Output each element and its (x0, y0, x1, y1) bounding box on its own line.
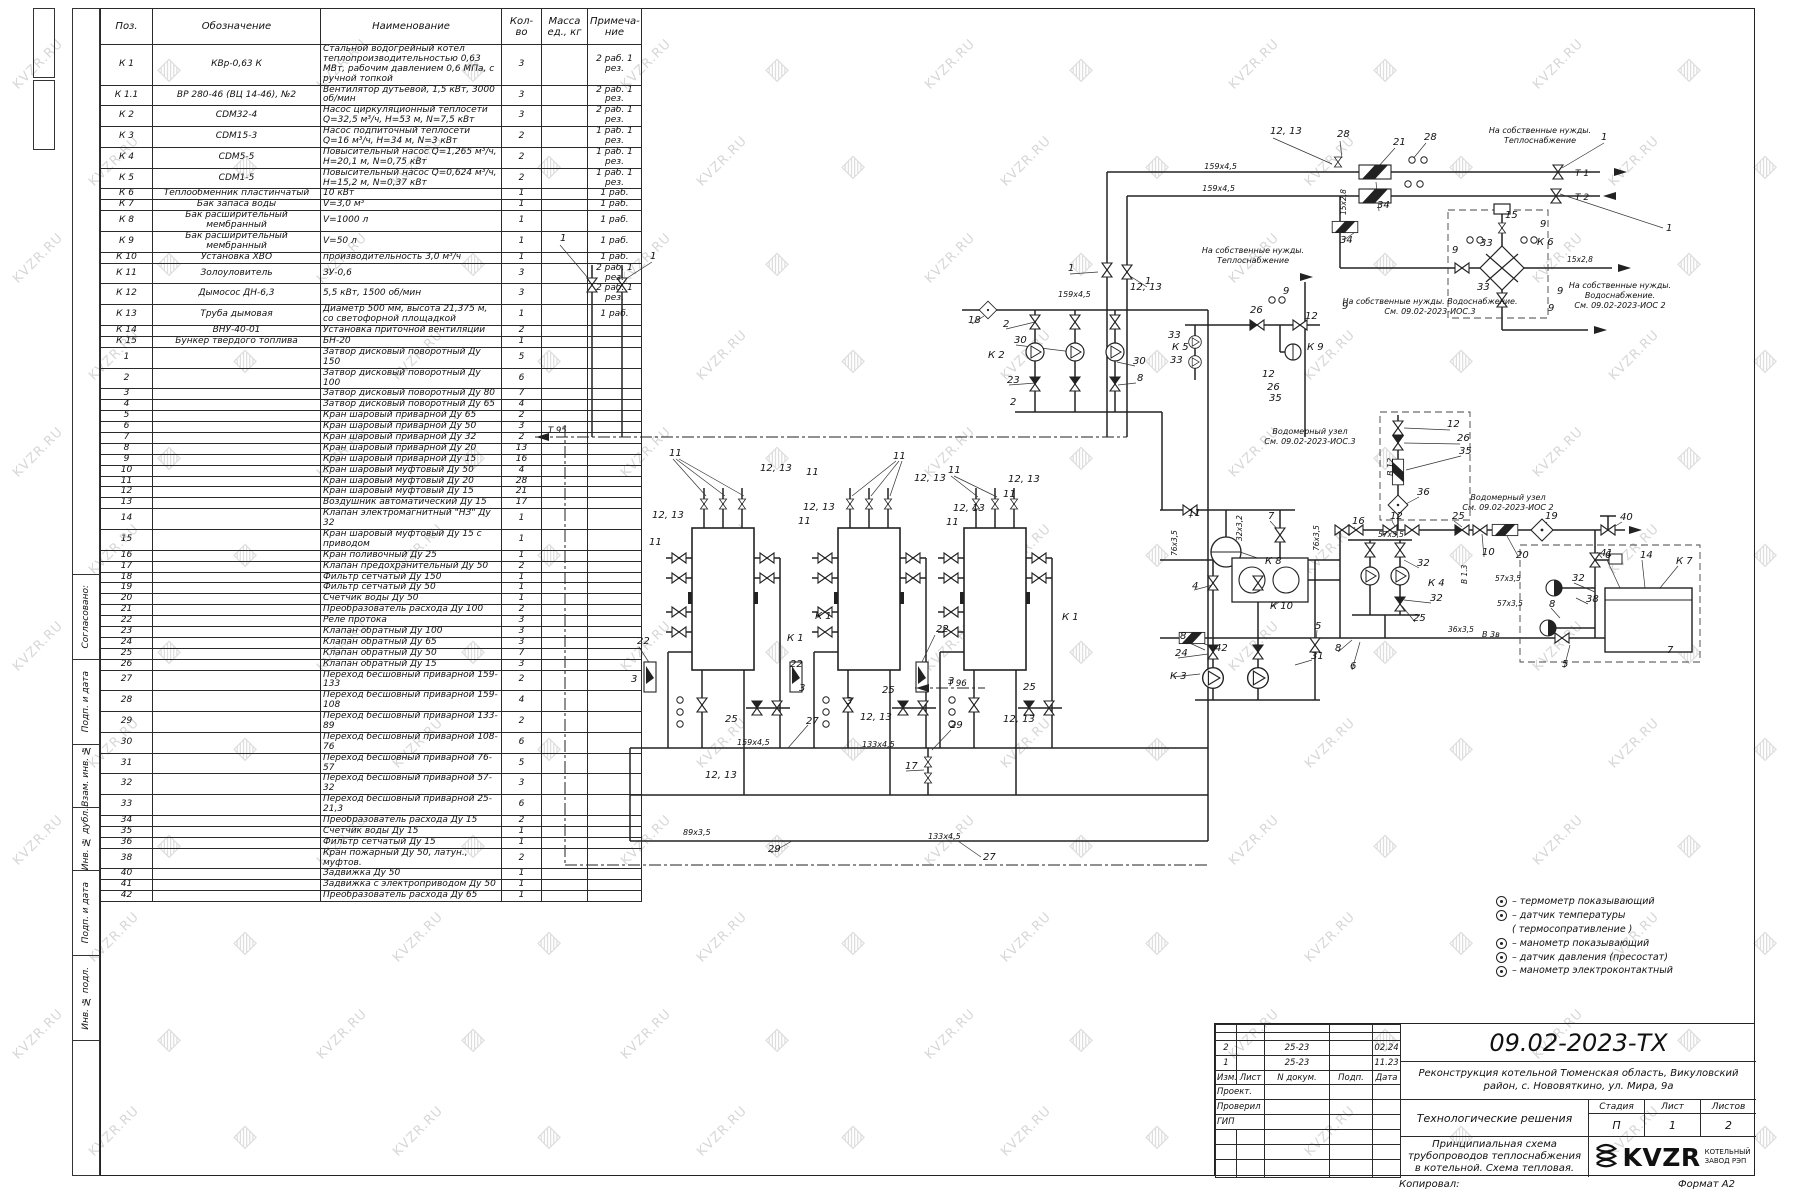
spec-cell: 1 раб. 1 рез. (588, 127, 642, 148)
spec-row: К 11ЗолоуловительЗУ-0,632 раб. 1 рез. (101, 263, 642, 284)
symbol-vh (1110, 315, 1120, 329)
spec-cell (153, 476, 321, 487)
schematic-label: 25 (882, 685, 895, 696)
revision-cell: Изм. (1216, 1071, 1237, 1085)
symbol-rl (644, 662, 656, 692)
spec-cell: 1 раб. (588, 305, 642, 326)
spec-row: 17Клапан предохранительный Ду 502 (101, 561, 642, 572)
revision-cell: Проверил (1216, 1100, 1265, 1115)
spec-row: 29Переход бесшовный приварной 133-892 (101, 712, 642, 733)
revision-cell (1330, 1056, 1373, 1071)
spec-cell: 2 (101, 368, 153, 389)
schematic-label: 2 (1010, 397, 1016, 408)
spec-cell: 16 (101, 550, 153, 561)
revision-cell (1237, 1130, 1265, 1145)
schematic-label: 9 (1283, 286, 1289, 297)
schematic-label: 28 (1424, 132, 1437, 143)
spec-cell: 8 (101, 443, 153, 454)
spec-cell: 9 (101, 454, 153, 465)
spec-cell: Переход бесшовный приварной 133-89 (321, 712, 502, 733)
spec-cell: 21 (502, 487, 542, 498)
symbol-vh (1275, 528, 1285, 542)
expansion-tank-k9 (1285, 344, 1301, 360)
legend-label: ( термосопративление ) (1512, 924, 1632, 935)
symbol-pm (1248, 668, 1269, 689)
revision-cell (1237, 1145, 1265, 1160)
legend-item: – манометр электроконтактный (1496, 965, 1673, 976)
schematic-label: 21 (1393, 137, 1406, 148)
schematic-label: 15 (1505, 210, 1518, 221)
symbol-ch (1455, 525, 1469, 535)
spec-cell: Бак расширительный мембранный (153, 232, 321, 253)
schematic-label: 25 (725, 714, 738, 725)
spec-cell: Стальной водогрейный котел теплопроизвод… (321, 45, 502, 86)
flow-arrow-icon (1629, 526, 1642, 534)
symbol-vh (944, 607, 958, 617)
spec-cell: 3 (502, 45, 542, 86)
schematic-label: 11 (1188, 508, 1201, 519)
spec-cell: Клапан предохранительный Ду 50 (321, 561, 502, 572)
spec-cell: 1 (502, 594, 542, 605)
instrument-icon (1496, 910, 1507, 921)
spec-cell: 1 (502, 869, 542, 880)
schematic-label: 26 (1250, 305, 1263, 316)
spec-cell (588, 869, 642, 880)
schematic-label: К 9 (1307, 342, 1324, 353)
spec-cell (588, 432, 642, 443)
schematic-label: На собственные нужды. (1489, 126, 1591, 135)
spec-cell (542, 648, 588, 659)
spec-cell: 14 (101, 509, 153, 530)
spec-cell (588, 336, 642, 347)
spec-cell (542, 509, 588, 530)
spec-cell: 2 (502, 848, 542, 869)
spec-cell (542, 368, 588, 389)
spec-cell: Задвижка с электроприводом Ду 50 (321, 880, 502, 891)
spec-cell: 26 (101, 659, 153, 670)
spec-cell: V=50 л (321, 232, 502, 253)
spec-cell: Золоуловитель (153, 263, 321, 284)
spec-cell (542, 487, 588, 498)
spec-cell: 34 (101, 816, 153, 827)
spec-cell (542, 869, 588, 880)
symbol-vh (1393, 421, 1403, 435)
schematic-label: 17 (905, 761, 918, 772)
schematic-label: На собственные нужды. Водоснабжение. (1342, 297, 1517, 306)
spec-cell: 5 (502, 347, 542, 368)
spec-cell: Клапан обратный Ду 50 (321, 648, 502, 659)
spec-row: 13Воздушник автоматический Ду 1517 (101, 498, 642, 509)
spec-cell (542, 594, 588, 605)
spec-cell: 4 (502, 400, 542, 411)
symbol-vh (846, 499, 853, 509)
schematic-label: 30 (1014, 335, 1027, 346)
spec-cell: Бункер твердого топлива (153, 336, 321, 347)
spec-cell: 21 (101, 605, 153, 616)
spec-cell: 1 (502, 252, 542, 263)
schematic-label: 35 (1459, 446, 1472, 457)
spec-row: 9Кран шаровый приварной Ду 1516 (101, 454, 642, 465)
side-label: Взам. инв. № (81, 745, 91, 807)
symbol-mc (1269, 297, 1275, 303)
spec-cell: 1 (502, 826, 542, 837)
schematic-label: 38 (1586, 594, 1599, 605)
schematic-label: На собственные нужды. (1202, 246, 1304, 255)
spec-cell: 1 (502, 305, 542, 326)
schematic-label: К 2 (988, 350, 1005, 361)
legend-label: – манометр показывающий (1512, 938, 1649, 949)
spec-cell: 6 (502, 368, 542, 389)
schematic-label: 12, 13 (760, 463, 792, 474)
spec-cell: 22 (101, 616, 153, 627)
spec-cell (542, 605, 588, 616)
symbol-dm (979, 301, 997, 319)
symbol-vh (1365, 543, 1375, 557)
revision-row (1216, 1130, 1401, 1145)
schematic-label: 8 (1137, 373, 1143, 384)
spec-cell (542, 211, 588, 232)
spec-row: К 14ВНУ-40-01Установка приточной вентиля… (101, 326, 642, 337)
legend-item: ( термосопративление ) (1496, 924, 1673, 935)
spec-cell (588, 400, 642, 411)
schematic-label: 36 (1417, 487, 1430, 498)
spec-cell (588, 487, 642, 498)
symbol-vh (672, 627, 686, 637)
spec-cell (588, 712, 642, 733)
stage-label: Стадия (1588, 1100, 1644, 1114)
spec-cell (542, 529, 588, 550)
spec-cell: 28 (101, 691, 153, 712)
spec-row: 23Клапан обратный Ду 1003 (101, 626, 642, 637)
schematic-label: 11 (946, 517, 959, 528)
spec-cell (153, 637, 321, 648)
schematic-label: В 12 (1386, 458, 1395, 476)
schematic-label: 24 (1175, 648, 1188, 659)
flow-arrow-icon (1614, 168, 1627, 176)
spec-cell: Вентилятор дутьевой, 1,5 кВт, 3000 об/ми… (321, 85, 502, 106)
spec-cell (153, 432, 321, 443)
spec-cell (588, 422, 642, 433)
schematic-label: См. 09.02-2023-ИОС.3 (1384, 307, 1475, 316)
schematic-label: 33 (1168, 330, 1181, 341)
spec-cell: 11 (101, 476, 153, 487)
spec-row: 18Фильтр сетчатый Ду 1501 (101, 572, 642, 583)
schematic-label: 8 (1180, 631, 1186, 642)
spec-row: К 3CDM15-3Насос подпиточный теплосети Q=… (101, 127, 642, 148)
revision-cell (1373, 1160, 1401, 1178)
symbol-vh (865, 499, 872, 509)
spec-row: 6Кран шаровый приварной Ду 503 (101, 422, 642, 433)
spec-cell: Затвор дисковый поворотный Ду 150 (321, 347, 502, 368)
schematic-label: К 1 (1062, 612, 1079, 623)
revision-row: 125-2311.23 (1216, 1056, 1401, 1071)
spec-cell: Фильтр сетчатый Ду 50 (321, 583, 502, 594)
revision-cell (1330, 1100, 1373, 1115)
spec-cell: 7 (502, 389, 542, 400)
spec-cell (153, 616, 321, 627)
spec-cell (588, 529, 642, 550)
spec-cell: Кран пожарный Ду 50, латун., муфтов. (321, 848, 502, 869)
schematic-label: 2 (1003, 319, 1009, 330)
spec-cell (153, 400, 321, 411)
schematic-label: 26 (1267, 382, 1280, 393)
symbol-vh (906, 553, 920, 563)
schematic-label: 57х3,5 (1497, 599, 1523, 608)
revision-cell: 25-23 (1265, 1041, 1330, 1056)
spec-cell (153, 774, 321, 795)
spec-cell (153, 712, 321, 733)
spec-row: 38Кран пожарный Ду 50, латун., муфтов.2 (101, 848, 642, 869)
spec-cell: Фильтр сетчатый Ду 150 (321, 572, 502, 583)
spec-cell (542, 826, 588, 837)
spec-cell: 5,5 кВт, 1500 об/мин (321, 284, 502, 305)
spec-cell: Затвор дисковый поворотный Ду 65 (321, 400, 502, 411)
instrument-icon (1496, 952, 1507, 963)
spec-cell: К 6 (101, 189, 153, 200)
spec-cell (588, 454, 642, 465)
spec-row: К 10Установка ХВОпроизводительность 3,0 … (101, 252, 642, 263)
spec-cell (542, 561, 588, 572)
spec-row: К 9Бак расширительный мембранныйV=50 л11… (101, 232, 642, 253)
drawing-sheet: ▨KVZR.RU▨KVZR.RU▨KVZR.RU▨KVZR.RU▨KVZR.RU… (0, 0, 1800, 1200)
spec-cell: 29 (101, 712, 153, 733)
flow-arrow-icon (1594, 326, 1607, 334)
schematic-label: 22 (790, 659, 803, 670)
spec-cell (542, 284, 588, 305)
schematic-label: 7 (1268, 511, 1275, 522)
logo-caption: КОТЕЛЬНЫЙ ЗАВОД РЭП (1705, 1148, 1751, 1166)
spec-cell: 3 (502, 637, 542, 648)
spec-cell: 13 (502, 443, 542, 454)
spec-cell: Клапан электромагнитный "НЗ" Ду 32 (321, 509, 502, 530)
spec-row: 26Клапан обратный Ду 153 (101, 659, 642, 670)
symbol-mc (677, 697, 683, 703)
logo-text: KVZR (1622, 1143, 1700, 1172)
spec-row: 14Клапан электромагнитный "НЗ" Ду 321 (101, 509, 642, 530)
revision-row (1216, 1025, 1401, 1033)
symbol-vh (1208, 576, 1218, 590)
symbol-vh (924, 773, 931, 783)
sheet-title: Принципиальная схема трубопроводов тепло… (1400, 1137, 1588, 1177)
schematic-label: 34 (1340, 235, 1353, 246)
schematic-label: 20 (1516, 550, 1529, 561)
boiler-3 (960, 528, 1030, 670)
spec-cell: Преобразователь расхода Ду 15 (321, 816, 502, 827)
spec-cell (542, 200, 588, 211)
spec-cell: 6 (502, 732, 542, 753)
boiler-2 (834, 528, 904, 670)
spec-cell: Кран шаровый муфтовый Ду 15 с приводом (321, 529, 502, 550)
symbol-pm (1391, 567, 1409, 585)
spec-cell: К 2 (101, 106, 153, 127)
schematic-label: 27 (806, 716, 819, 727)
spec-cell (588, 476, 642, 487)
spec-cell: Клапан обратный Ду 15 (321, 659, 502, 670)
spec-cell (153, 594, 321, 605)
spec-cell (542, 347, 588, 368)
schematic-label: См. 09.02-2023-ИОС 2 (1574, 301, 1665, 310)
spec-cell (153, 572, 321, 583)
spec-row: К 13Труба дымоваяДиаметр 500 мм, высота … (101, 305, 642, 326)
spec-cell: К 11 (101, 263, 153, 284)
spec-cell: 17 (101, 561, 153, 572)
spec-cell (542, 498, 588, 509)
revision-cell (1265, 1033, 1330, 1041)
side-cell-empty (73, 9, 99, 575)
spec-cell (153, 891, 321, 902)
schematic-label: 11 (948, 465, 961, 476)
spec-cell (542, 732, 588, 753)
spec-cell (153, 550, 321, 561)
spec-cell: 6 (101, 422, 153, 433)
spec-cell: CDM15-3 (153, 127, 321, 148)
revision-cell (1216, 1145, 1237, 1160)
spec-cell (588, 605, 642, 616)
spec-cell: Переход бесшовный приварной 159-108 (321, 691, 502, 712)
spec-cell: К 12 (101, 284, 153, 305)
spec-cell: 10 кВт (321, 189, 502, 200)
spec-cell: Кран поливочный Ду 25 (321, 550, 502, 561)
schematic-label: Теплоснабжение (1217, 256, 1289, 265)
spec-cell (153, 422, 321, 433)
symbol-vh (1334, 157, 1341, 167)
spec-cell: 2 (502, 168, 542, 189)
flow-arrow-icon (1618, 264, 1631, 272)
spec-cell (542, 626, 588, 637)
spec-cell (153, 583, 321, 594)
schematic-label: К 8 (1265, 556, 1282, 567)
spec-cell: Воздушник автоматический Ду 15 (321, 498, 502, 509)
spec-cell: 10 (101, 465, 153, 476)
spec-row: 2Затвор дисковый поворотный Ду 1006 (101, 368, 642, 389)
stage-value: П (1588, 1114, 1644, 1137)
revision-row: Изм.ЛистN докум.Подп.Дата (1216, 1071, 1401, 1085)
spec-cell (153, 816, 321, 827)
spec-row: 22Реле протока3 (101, 616, 642, 627)
spec-row: 30Переход бесшовный приварной 108-766 (101, 732, 642, 753)
schematic-label: 22 (936, 624, 949, 635)
revision-cell (1330, 1160, 1373, 1178)
schematic-label: 3 (799, 683, 805, 694)
logo-caption-line1: КОТЕЛЬНЫЙ (1705, 1148, 1751, 1156)
schematic-label: 12 (1305, 311, 1318, 322)
spec-cell: 2 (502, 816, 542, 827)
schematic-label: 42 (1215, 643, 1228, 654)
revision-cell (1373, 1025, 1401, 1033)
symbol-ch (1395, 597, 1405, 611)
symbol-vh (1473, 525, 1487, 535)
revision-cell (1373, 1100, 1401, 1115)
spec-cell (542, 712, 588, 733)
schematic-label: 1 (650, 251, 656, 262)
revision-cell: Лист (1237, 1071, 1265, 1085)
schematic-label: К 3 (1170, 671, 1187, 682)
spec-cell: 2 (502, 605, 542, 616)
symbol-vh (924, 757, 931, 767)
symbol-mc (949, 697, 955, 703)
schematic-label: 33 (1480, 238, 1493, 249)
spec-cell: 3 (502, 85, 542, 106)
schematic-label: 76х3,5 (1170, 530, 1179, 556)
corner-stamp-box (33, 80, 55, 150)
symbol-vh (1310, 638, 1320, 652)
spec-cell: 1 (101, 347, 153, 368)
spec-cell: 3 (502, 616, 542, 627)
spec-cell (542, 583, 588, 594)
revision-cell (1216, 1160, 1237, 1178)
spec-cell (542, 127, 588, 148)
schematic-label: 32 (1417, 558, 1430, 569)
spec-cell (588, 891, 642, 902)
revision-cell (1265, 1085, 1330, 1100)
spec-cell (542, 336, 588, 347)
spec-row: 19Фильтр сетчатый Ду 501 (101, 583, 642, 594)
spec-row: К 7Бак запаса водыV=3,0 м³11 раб. (101, 200, 642, 211)
schematic-label: На собственные нужды. (1569, 281, 1671, 290)
spec-cell (542, 432, 588, 443)
spec-cell (542, 45, 588, 86)
spec-cell (153, 529, 321, 550)
side-label: Инв. № подл. (81, 967, 91, 1030)
spec-cell: Преобразователь расхода Ду 100 (321, 605, 502, 616)
company-logo: KVZR КОТЕЛЬНЫЙ ЗАВОД РЭП (1588, 1137, 1756, 1177)
spec-cell: 1 раб. 1 рез. (588, 147, 642, 168)
spec-cell (588, 594, 642, 605)
legend-label: – манометр электроконтактный (1512, 965, 1673, 976)
schematic-label: 33 (1477, 282, 1490, 293)
side-cell: Инв. № дубл. (73, 808, 99, 871)
schematic-label: Т 2 (1575, 193, 1589, 203)
symbol-hp (1540, 620, 1556, 636)
spec-row: 25Клапан обратный Ду 507 (101, 648, 642, 659)
revision-cell (1216, 1025, 1237, 1033)
spec-cell: 19 (101, 583, 153, 594)
spec-cell: 35 (101, 826, 153, 837)
revision-row: ГИП (1216, 1115, 1401, 1130)
schematic-label: 32 (1430, 593, 1443, 604)
symbol-vh (1032, 553, 1046, 563)
spec-cell (542, 232, 588, 253)
spec-cell: ВР 280-46 (ВЦ 14-46), №2 (153, 85, 321, 106)
flow-arrow-icon (1300, 273, 1313, 281)
spec-row: 5Кран шаровый приварной Ду 652 (101, 411, 642, 422)
symbol-hp (1546, 580, 1562, 596)
spec-cell: 4 (502, 465, 542, 476)
sheets-value: 2 (1700, 1114, 1756, 1137)
spec-cell (153, 691, 321, 712)
project-description: Реконструкция котельной Тюменская област… (1400, 1062, 1756, 1100)
spec-row: 1Затвор дисковый поворотный Ду 1505 (101, 347, 642, 368)
symbol-vh (672, 573, 686, 583)
spec-cell (588, 774, 642, 795)
instrument-icon (1496, 966, 1507, 977)
spec-header-note: Примеча- ние (588, 9, 642, 45)
symbol-vh (818, 627, 832, 637)
schematic-label: 16 (1352, 516, 1365, 527)
spec-cell: Клапан обратный Ду 65 (321, 637, 502, 648)
spec-cell: 25 (101, 648, 153, 659)
spec-cell: Кран шаровый приварной Ду 50 (321, 422, 502, 433)
spec-cell: 3 (502, 422, 542, 433)
symbol-vh (672, 607, 686, 617)
schematic-label: Водоснабжение. (1585, 291, 1655, 300)
spec-cell (542, 389, 588, 400)
spec-cell: К 9 (101, 232, 153, 253)
spec-cell: V=3,0 м³ (321, 200, 502, 211)
schematic-label: Т 1 (1575, 169, 1589, 179)
schematic-label: 32х3,2 (1235, 515, 1244, 541)
spec-row: 28Переход бесшовный приварной 159-1084 (101, 691, 642, 712)
